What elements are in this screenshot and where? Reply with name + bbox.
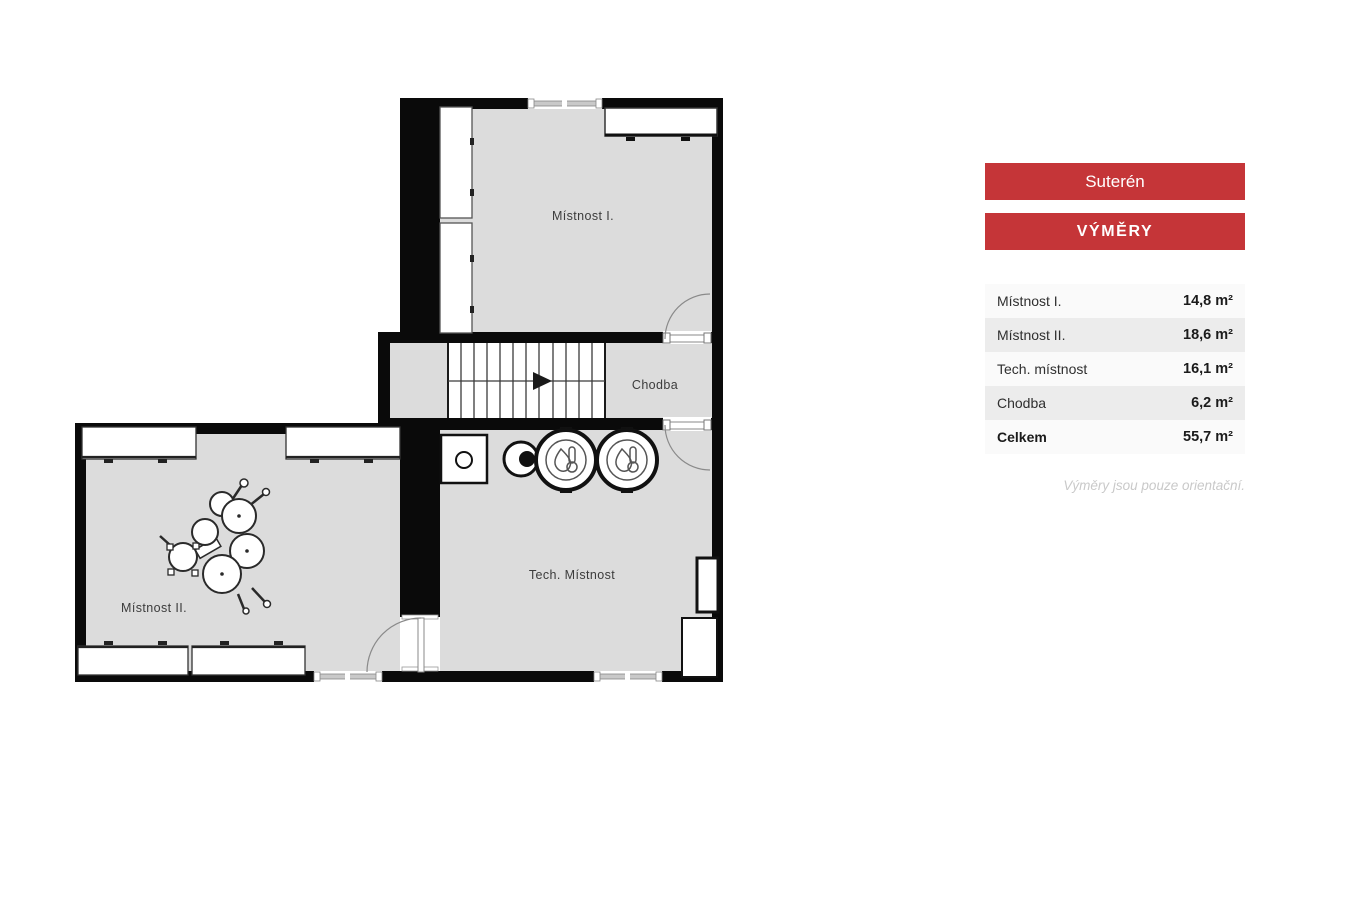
boiler-icon — [536, 427, 596, 493]
row-value: 6,2 m² — [1191, 395, 1233, 411]
row-value: 16,1 m² — [1183, 361, 1233, 377]
table-row: Tech. místnost 16,1 m² — [985, 352, 1245, 386]
row-label: Chodba — [997, 395, 1046, 411]
wall-unit — [697, 558, 718, 612]
shelf — [605, 108, 717, 141]
window-room2 — [314, 671, 382, 682]
room1-floor — [440, 109, 712, 341]
tech-label: Tech. Místnost — [529, 568, 615, 582]
room1-label: Místnost I. — [552, 209, 614, 223]
cabinet — [82, 427, 196, 463]
room-fills — [86, 109, 712, 671]
window-top — [528, 98, 602, 109]
row-label: Místnost I. — [997, 293, 1062, 309]
areas-button[interactable]: VÝMĚRY — [985, 213, 1245, 250]
disclaimer-text: Výměry jsou pouze orientační. — [985, 478, 1245, 493]
row-value: 18,6 m² — [1183, 327, 1233, 343]
room2-label: Místnost II. — [121, 601, 187, 615]
wardrobe — [440, 223, 472, 333]
row-label: Celkem — [997, 429, 1047, 445]
table-row: Místnost II. 18,6 m² — [985, 318, 1245, 352]
window-tech — [594, 671, 662, 682]
chodba-label: Chodba — [632, 378, 678, 392]
stove-burner-icon — [504, 442, 538, 476]
cabinet — [192, 641, 305, 675]
wardrobe — [440, 107, 472, 218]
row-value: 55,7 m² — [1183, 429, 1233, 445]
cabinet — [78, 641, 188, 675]
row-label: Tech. místnost — [997, 361, 1087, 377]
table-row-total: Celkem 55,7 m² — [985, 420, 1245, 454]
area-table: Místnost I. 14,8 m² Místnost II. 18,6 m²… — [985, 284, 1245, 454]
sink-icon — [441, 435, 487, 483]
legend-panel: Suterén VÝMĚRY Místnost I. 14,8 m² Místn… — [985, 163, 1245, 493]
table-row: Místnost I. 14,8 m² — [985, 284, 1245, 318]
appliance-box — [682, 618, 717, 677]
row-label: Místnost II. — [997, 327, 1065, 343]
cabinet — [286, 427, 400, 463]
boiler-icon — [597, 427, 657, 493]
row-value: 14,8 m² — [1183, 293, 1233, 309]
staircase — [448, 341, 605, 421]
floor-button[interactable]: Suterén — [985, 163, 1245, 200]
table-row: Chodba 6,2 m² — [985, 386, 1245, 420]
